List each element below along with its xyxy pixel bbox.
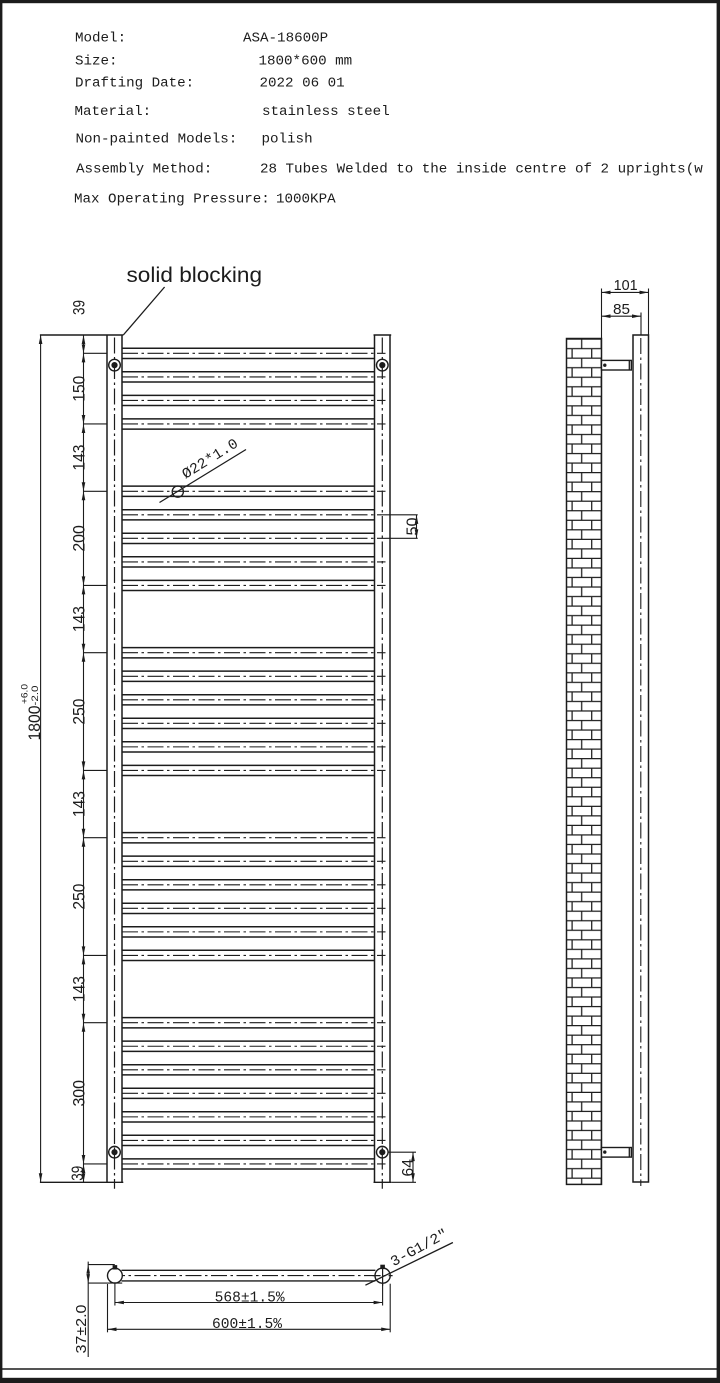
svg-text:200: 200 [70,525,88,552]
svg-text:Model:: Model: [75,31,126,47]
svg-text:143: 143 [70,976,88,1002]
svg-text:Max Operating Pressure:: Max Operating Pressure: [74,192,270,208]
svg-text:101: 101 [614,277,638,294]
svg-text:39: 39 [69,1166,87,1181]
svg-text:Drafting Date:: Drafting Date: [75,76,194,92]
svg-text:Assembly Method:: Assembly Method: [76,162,212,178]
svg-text:250: 250 [70,699,88,725]
svg-text:28 Tubes Welded to the inside: 28 Tubes Welded to the inside centre of … [260,162,703,178]
svg-text:2022 06 01: 2022 06 01 [260,76,345,92]
svg-text:85: 85 [613,301,630,318]
svg-text:-2.0: -2.0 [30,686,41,706]
svg-text:143: 143 [70,791,88,817]
svg-text:150: 150 [70,376,88,402]
svg-text:1800*600 mm: 1800*600 mm [259,54,353,70]
svg-text:568±1.5%: 568±1.5% [215,1290,285,1306]
svg-text:143: 143 [70,606,88,632]
svg-text:300: 300 [70,1080,88,1107]
svg-text:Material:: Material: [75,104,152,120]
svg-text:600±1.5%: 600±1.5% [212,1317,282,1333]
svg-text:polish: polish [262,132,313,148]
svg-text:ASA-18600P: ASA-18600P [243,31,328,47]
svg-text:37±2.0: 37±2.0 [73,1305,90,1354]
svg-text:+6.0: +6.0 [19,684,30,704]
svg-text:39: 39 [70,300,88,315]
svg-text:143: 143 [70,445,88,471]
svg-text:1800: 1800 [25,706,44,741]
svg-text:stainless steel: stainless steel [262,104,390,120]
svg-text:solid blocking: solid blocking [127,264,263,287]
svg-text:Size:: Size: [75,54,118,70]
svg-text:Non-painted Models:: Non-painted Models: [76,132,238,148]
svg-text:250: 250 [70,884,88,910]
svg-text:50: 50 [404,517,421,535]
svg-text:64: 64 [400,1159,417,1177]
svg-text:1000KPA: 1000KPA [276,192,336,208]
